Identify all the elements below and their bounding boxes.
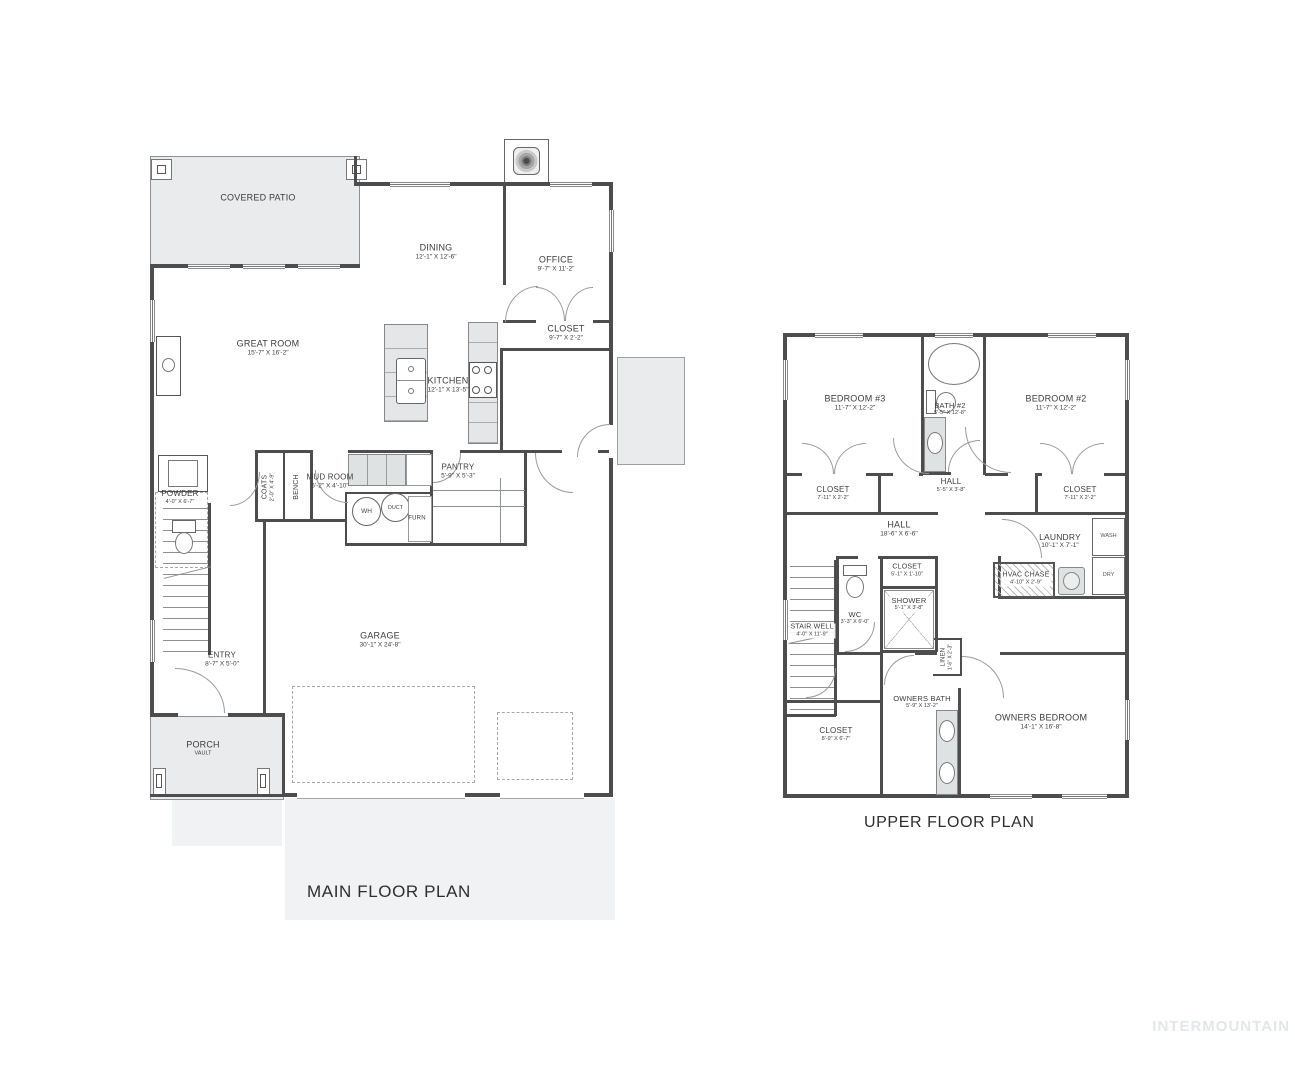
thin-line xyxy=(433,490,525,491)
wc-toilet-bowl-icon xyxy=(846,576,864,598)
wall-segment xyxy=(503,182,506,285)
wall-segment xyxy=(878,556,938,559)
bathtub-icon xyxy=(928,343,980,385)
wc-door-arc xyxy=(845,622,875,652)
thin-line xyxy=(397,380,425,381)
entry-door-arc xyxy=(175,668,225,713)
wall-segment xyxy=(345,543,434,546)
fixture-detail-icon xyxy=(408,366,414,372)
closet-french-door-arc xyxy=(1072,443,1104,474)
floor-plan-page: WH DUCT COVERED PATIO DINING12'-1" X 12'… xyxy=(0,0,1295,1080)
chimney-flue-icon xyxy=(513,147,540,175)
fixture-detail-icon xyxy=(162,358,175,372)
room-label-linen: LINEN1'-6" X 2'-3" xyxy=(940,644,953,670)
room-label-bath2: BATH #25'-5" X 12'-8" xyxy=(934,401,966,417)
room-label-bedroom2: BEDROOM #211'-7" X 12'-2" xyxy=(1025,394,1086,413)
wall-segment xyxy=(263,519,266,716)
closet-french-door-arc xyxy=(536,287,565,321)
garage-door-opening xyxy=(500,793,584,799)
window-marker xyxy=(1125,360,1130,400)
wall-segment xyxy=(354,156,357,186)
window-marker xyxy=(390,182,450,187)
room-label-closet-bed3: CLOSET7'-11" X 2'-2" xyxy=(816,485,849,501)
wall-segment xyxy=(836,652,882,655)
closet-french-door-arc xyxy=(565,287,593,321)
bath2-door-arc xyxy=(948,440,980,472)
fixture-detail-icon xyxy=(484,386,492,394)
wall-segment xyxy=(150,713,178,717)
dryer-label: DRY xyxy=(1094,572,1123,578)
wall-segment xyxy=(985,512,1126,515)
wall-segment xyxy=(836,556,858,559)
room-label-laundry: LAUNDRY10'-1" X 7'-1" xyxy=(1039,532,1081,550)
garage-door-outline xyxy=(497,712,573,780)
closet-french-door-arc xyxy=(1040,443,1072,474)
room-label-closet-bed2: CLOSET7'-11" X 2'-2" xyxy=(1063,485,1096,501)
room-label-closet-office: CLOSET9'-7" X 2'-2" xyxy=(547,324,584,343)
side-stoop-area xyxy=(617,357,685,465)
wall-segment xyxy=(593,320,613,323)
garage-door-outline xyxy=(292,686,475,783)
wall-segment xyxy=(609,182,613,797)
window-marker xyxy=(150,620,155,662)
water-heater-icon: WH xyxy=(352,497,381,526)
window-marker xyxy=(1048,333,1096,338)
window-marker xyxy=(783,360,788,400)
garage-door-opening xyxy=(297,793,465,799)
window-marker xyxy=(1125,700,1130,740)
kitchen-sink-icon xyxy=(396,358,426,404)
wall-segment xyxy=(208,503,211,655)
window-marker xyxy=(150,300,155,342)
room-label-owners-bath: OWNERS BATH5'-9" X 13'-2" xyxy=(893,694,950,710)
wall-segment xyxy=(880,586,937,589)
wall-segment xyxy=(787,512,880,515)
window-marker xyxy=(550,182,592,187)
room-label-pantry: PANTRY5'-9" X 5'-3" xyxy=(441,462,475,479)
wall-segment xyxy=(933,674,962,676)
porch-step-area xyxy=(172,798,282,846)
owners-bath-door-arc xyxy=(884,655,914,685)
window-marker xyxy=(815,333,863,338)
wall-segment xyxy=(958,688,961,797)
wall-segment xyxy=(933,638,962,640)
wall-segment xyxy=(880,512,938,515)
wall-segment xyxy=(783,333,787,798)
fixture-box xyxy=(1063,572,1080,590)
covered-patio-area xyxy=(150,156,360,268)
room-label-bench: BENCH xyxy=(293,474,301,500)
wall-segment xyxy=(150,794,284,797)
wall-segment xyxy=(283,453,285,521)
room-label-powder: POWDER4'-0" X 6'-7" xyxy=(161,489,198,505)
thin-line xyxy=(609,425,613,458)
powder-sink-icon xyxy=(168,460,198,487)
wall-segment xyxy=(430,543,527,546)
room-label-bedroom3: BEDROOM #311'-7" X 12'-2" xyxy=(824,394,885,413)
wall-segment xyxy=(878,473,881,515)
wall-segment xyxy=(1104,473,1126,476)
room-label-entry: ENTRY8'-7" X 5'-0" xyxy=(205,650,239,667)
room-label-closet-hall: CLOSET5'-1" X 1'-10" xyxy=(891,564,923,579)
wall-segment xyxy=(500,348,503,452)
office-door-arc xyxy=(505,286,538,322)
room-label-coats: COATS2'-0" X 4'-9" xyxy=(262,473,277,502)
room-label-stair-well: STAIR WELL4'-0" X 11'-9" xyxy=(788,624,835,639)
window-marker xyxy=(990,794,1032,799)
window-marker xyxy=(609,210,614,252)
fixture-detail-icon xyxy=(408,388,414,394)
bath2-sink-icon xyxy=(927,432,943,454)
room-label-hall-upper: HALL5'-5" X 3'-8" xyxy=(937,477,966,493)
room-label-office: OFFICE9'-7" X 11'-2" xyxy=(538,255,575,274)
wall-segment xyxy=(1035,473,1038,515)
fixture-box xyxy=(260,774,266,788)
closet-french-door-arc xyxy=(802,443,834,474)
fixture-box xyxy=(406,454,432,486)
window-marker xyxy=(188,264,230,269)
wall-segment xyxy=(282,713,285,797)
window-marker xyxy=(1062,794,1107,799)
wall-segment xyxy=(787,700,882,703)
fixture-box xyxy=(157,165,166,174)
main-floor-plan-title: MAIN FLOOR PLAN xyxy=(307,882,471,902)
wall-segment xyxy=(524,450,527,545)
room-label-furn: FURN xyxy=(408,515,425,522)
wall-segment xyxy=(880,556,883,797)
room-label-kitchen: KITCHEN12'-1" X 13'-5" xyxy=(427,376,468,395)
wall-segment xyxy=(255,519,313,522)
room-label-garage: GARAGE30'-1" X 24'-8" xyxy=(359,631,400,650)
wc-toilet-tank-icon xyxy=(843,565,867,576)
room-label-covered-patio: COVERED PATIO xyxy=(220,193,295,204)
window-marker xyxy=(783,600,788,640)
owners-sink-icon xyxy=(939,762,955,784)
wall-segment xyxy=(787,714,836,717)
room-label-dining: DINING12'-1" X 12'-6" xyxy=(415,243,456,262)
wall-segment xyxy=(785,473,802,476)
bedroom3-door-arc xyxy=(893,438,929,474)
wall-segment xyxy=(915,652,937,655)
wall-segment xyxy=(460,450,527,453)
wall-segment xyxy=(985,473,1008,476)
room-label-porch: PORCHVAULT xyxy=(186,739,220,756)
room-label-shower: SHOWER5'-1" X 3'-8" xyxy=(890,596,929,612)
fixture-detail-icon xyxy=(484,366,492,374)
wall-segment xyxy=(503,348,613,351)
fixture-detail-icon xyxy=(175,532,193,554)
thin-line xyxy=(433,506,525,507)
wall-segment xyxy=(348,450,433,453)
room-label-hvac-chase: HVAC CHASE4'-10" X 2'-9" xyxy=(1001,572,1052,587)
laundry-door-arc xyxy=(1002,519,1042,558)
mudroom-lockers xyxy=(348,454,406,486)
room-label-great-room: GREAT ROOM15'-7" X 16'-2" xyxy=(237,339,300,358)
washer-label: WASH xyxy=(1094,533,1123,539)
fixture-detail-icon xyxy=(472,386,480,394)
room-label-hall-main: HALL18'-6" X 6'-6" xyxy=(880,520,917,539)
garage-entry-door-arc xyxy=(535,453,573,493)
window-marker xyxy=(935,333,973,338)
side-door-arc xyxy=(577,424,610,457)
fixture-detail-icon xyxy=(472,366,480,374)
room-label-wc: WC3'-3" X 6'-0" xyxy=(841,610,870,626)
room-label-mud-room: MUD ROOM5'-2" X 4'-10" xyxy=(307,472,354,489)
room-label-closet-owners: CLOSET8'-9" X 6'-7" xyxy=(819,726,852,742)
upper-floor-plan-title: UPPER FLOOR PLAN xyxy=(864,814,1035,832)
duct-icon: DUCT xyxy=(381,493,410,522)
thin-line xyxy=(500,478,501,543)
watermark: INTERMOUNTAIN xyxy=(1152,1018,1290,1035)
wall-segment xyxy=(1000,652,1126,655)
owners-bedroom-door-arc xyxy=(962,656,1004,698)
closet-french-door-arc xyxy=(834,443,866,474)
window-marker xyxy=(298,264,340,269)
room-label-owners-bedroom: OWNERS BEDROOM14'-1" X 16'-8" xyxy=(995,713,1087,732)
window-marker xyxy=(243,264,285,269)
fixture-box xyxy=(156,774,162,788)
owners-sink-icon xyxy=(939,720,955,742)
